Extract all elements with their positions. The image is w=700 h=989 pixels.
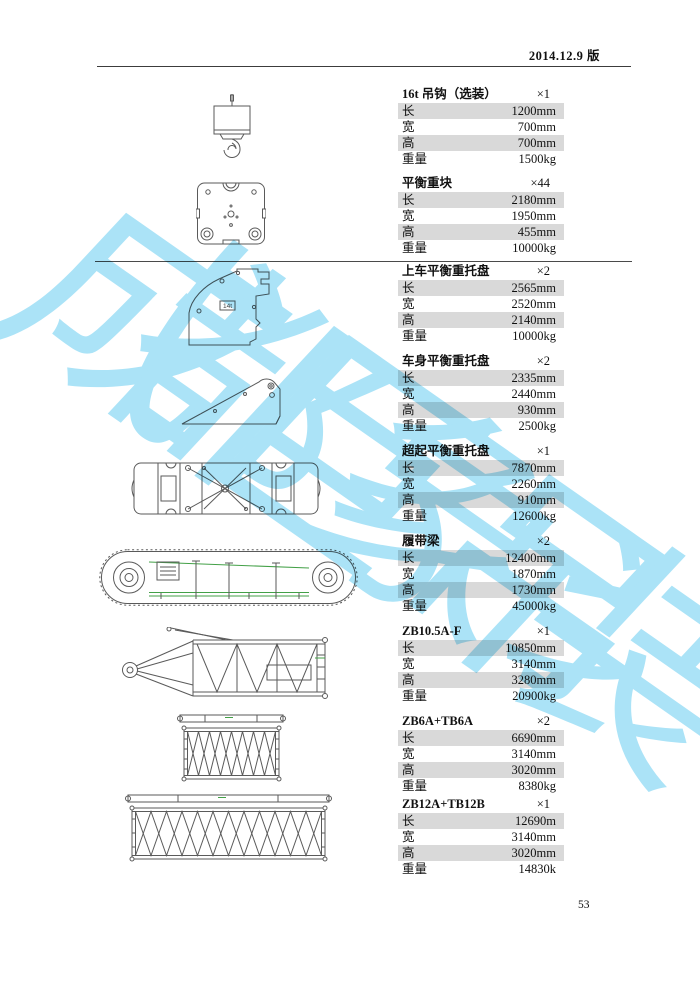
spec-row-value: 10000kg [512,240,556,256]
spec-row: 宽2260mm [398,476,564,492]
spec-row-value: 930mm [518,402,556,418]
spec-row: 长6690mm [398,730,564,746]
spec-row: 重量14830k [398,861,564,877]
spec-row-value: 10000kg [512,328,556,344]
spec-row-label: 宽 [402,746,415,762]
spec-row: 宽700mm [398,119,564,135]
spec-row-value: 3140mm [512,746,556,762]
spec-row-label: 高 [402,224,415,240]
document-page: 2014.12.9 版 成都巨象吊装 [0,0,700,989]
spec-row-label: 宽 [402,208,415,224]
spec-row-value: 20900kg [512,688,556,704]
spec-row-value: 2565mm [512,280,556,296]
spec-row-value: 3020mm [512,762,556,778]
spec-row-value: 3280mm [512,672,556,688]
boom-insert-zb6a-tb6a-drawing [175,713,288,784]
spec-row-value: 455mm [518,224,556,240]
spec-section-body-tray: 车身平衡重托盘 ×2 长2335mm 宽2440mm 高930mm 重量2500… [398,355,564,434]
spec-row-label: 重量 [402,778,427,794]
spec-row: 高700mm [398,135,564,151]
section-quantity: ×1 [537,624,550,639]
spec-section-crawler-beam: 履带梁 ×2 长12400mm 宽1870mm 高1730mm 重量45000k… [398,535,564,614]
spec-row: 重量20900kg [398,688,564,704]
spec-row-value: 700mm [518,135,556,151]
section-quantity: ×2 [537,264,550,279]
spec-row: 长2180mm [398,192,564,208]
spec-row-value: 2520mm [512,296,556,312]
spec-row: 重量10000kg [398,240,564,256]
spec-row: 长2565mm [398,280,564,296]
spec-row-label: 宽 [402,119,415,135]
spec-row: 高930mm [398,402,564,418]
spec-section-superlift-tray: 超起平衡重托盘 ×1 长7870mm 宽2260mm 高910mm 重量1260… [398,445,564,524]
spec-row: 长12400mm [398,550,564,566]
spec-row-label: 高 [402,492,415,508]
spec-row-value: 2140mm [512,312,556,328]
spec-row-label: 高 [402,762,415,778]
spec-row: 重量12600kg [398,508,564,524]
spec-row-value: 1500kg [519,151,557,167]
spec-row: 长10850mm [398,640,564,656]
spec-row-value: 14830k [519,861,557,877]
section-title: 上车平衡重托盘 [402,260,490,279]
spec-row: 宽2440mm [398,386,564,402]
spec-row: 高910mm [398,492,564,508]
spec-row: 长1200mm [398,103,564,119]
spec-row-label: 长 [402,103,415,119]
document-version: 2014.12.9 版 [400,45,600,64]
section-header: 16t 吊钩（选装） ×1 [398,88,564,103]
spec-row-value: 1200mm [512,103,556,119]
section-quantity: ×2 [537,714,550,729]
spec-row-label: 宽 [402,566,415,582]
spec-row-value: 1730mm [512,582,556,598]
section-title: 车身平衡重托盘 [402,350,490,369]
section-quantity: ×2 [537,354,550,369]
spec-row-label: 重量 [402,598,427,614]
body-counterweight-tray-drawing [179,371,284,428]
section-header: 车身平衡重托盘 ×2 [398,355,564,370]
section-title: 履带梁 [402,530,440,549]
spec-row-label: 长 [402,813,415,829]
spec-section-zb105af: ZB10.5A-F ×1 长10850mm 宽3140mm 高3280mm 重量… [398,625,564,704]
spec-row-label: 宽 [402,829,415,845]
spec-row: 高3280mm [398,672,564,688]
spec-row-label: 重量 [402,328,427,344]
section-header: 上车平衡重托盘 ×2 [398,265,564,280]
spec-row-label: 宽 [402,656,415,672]
spec-row-label: 宽 [402,296,415,312]
spec-section-zb6a-tb6a: ZB6A+TB6A ×2 长6690mm 宽3140mm 高3020mm 重量8… [398,715,564,794]
spec-row: 宽1950mm [398,208,564,224]
spec-row: 宽2520mm [398,296,564,312]
spec-row-label: 宽 [402,386,415,402]
spec-row: 重量1500kg [398,151,564,167]
spec-row: 高1730mm [398,582,564,598]
boom-insert-zb12a-tb12b-drawing [123,793,334,864]
section-title: 超起平衡重托盘 [402,440,490,459]
spec-row-value: 700mm [518,119,556,135]
spec-row-value: 3140mm [512,829,556,845]
spec-row-label: 宽 [402,476,415,492]
spec-row: 高3020mm [398,762,564,778]
page-number: 53 [578,899,590,911]
crawler-beam-drawing [99,547,358,608]
spec-row-value: 3020mm [512,845,556,861]
spec-section-zb12a-tb12b: ZB12A+TB12B ×1 长12690m 宽3140mm 高3020mm 重… [398,798,564,877]
superlift-counterweight-tray-drawing [130,455,322,522]
hook-drawing [210,94,254,168]
spec-row-value: 7870mm [512,460,556,476]
spec-row: 高2140mm [398,312,564,328]
spec-row-label: 高 [402,672,415,688]
spec-row: 长2335mm [398,370,564,386]
spec-row: 重量2500kg [398,418,564,434]
spec-row: 高3020mm [398,845,564,861]
spec-row-label: 重量 [402,508,427,524]
counterweight-block-drawing [196,181,266,247]
spec-row-value: 45000kg [512,598,556,614]
spec-row-value: 6690mm [512,730,556,746]
spec-row-value: 2180mm [512,192,556,208]
section-quantity: ×44 [530,176,550,191]
spec-row-label: 长 [402,730,415,746]
spec-section-hook: 16t 吊钩（选装） ×1 长1200mm 宽700mm 高700mm 重量15… [398,88,564,167]
spec-row-label: 长 [402,640,415,656]
spec-row: 高455mm [398,224,564,240]
spec-row-label: 长 [402,550,415,566]
spec-row-label: 高 [402,312,415,328]
spec-row: 宽3140mm [398,746,564,762]
section-quantity: ×1 [537,797,550,812]
section-title: ZB12A+TB12B [402,797,485,812]
section-title: 平衡重块 [402,172,452,191]
section-divider-rule [95,261,632,262]
section-header: 履带梁 ×2 [398,535,564,550]
drawing-capacity-label: 14t [223,303,232,310]
spec-row-label: 重量 [402,861,427,877]
spec-row-value: 2335mm [512,370,556,386]
section-header: 超起平衡重托盘 ×1 [398,445,564,460]
section-quantity: ×2 [537,534,550,549]
spec-row: 长7870mm [398,460,564,476]
spec-row-value: 1870mm [512,566,556,582]
boom-butt-zb105af-drawing [119,627,332,700]
section-header: ZB6A+TB6A ×2 [398,715,564,730]
spec-row-value: 3140mm [512,656,556,672]
header-rule [97,66,631,67]
spec-row-value: 12690m [515,813,556,829]
section-quantity: ×1 [537,444,550,459]
spec-row-value: 2440mm [512,386,556,402]
spec-row: 宽3140mm [398,656,564,672]
spec-row-label: 高 [402,845,415,861]
spec-row-value: 1950mm [512,208,556,224]
spec-row: 重量8380kg [398,778,564,794]
spec-row: 重量45000kg [398,598,564,614]
spec-row-label: 重量 [402,418,427,434]
spec-row-label: 重量 [402,688,427,704]
section-title: 16t 吊钩（选装） [402,83,497,102]
spec-row-label: 长 [402,370,415,386]
spec-row-label: 重量 [402,240,427,256]
spec-row-label: 高 [402,582,415,598]
section-header: ZB12A+TB12B ×1 [398,798,564,813]
spec-row-value: 10850mm [505,640,556,656]
spec-row: 宽1870mm [398,566,564,582]
section-quantity: ×1 [537,87,550,102]
spec-row-label: 长 [402,192,415,208]
spec-row-label: 长 [402,280,415,296]
spec-row-value: 910mm [518,492,556,508]
section-header: ZB10.5A-F ×1 [398,625,564,640]
spec-section-counterweight-block: 平衡重块 ×44 长2180mm 宽1950mm 高455mm 重量10000k… [398,177,564,256]
spec-section-upper-tray: 上车平衡重托盘 ×2 长2565mm 宽2520mm 高2140mm 重量100… [398,265,564,344]
spec-row-value: 2500kg [519,418,557,434]
spec-row-value: 2260mm [512,476,556,492]
spec-row-value: 12600kg [512,508,556,524]
spec-row-value: 8380kg [519,778,557,794]
upper-counterweight-tray-drawing: 14t [182,267,274,347]
watermark-text: 成都巨象吊装 [0,167,700,753]
section-title: ZB6A+TB6A [402,714,473,729]
spec-row-label: 长 [402,460,415,476]
spec-row-label: 重量 [402,151,427,167]
spec-row-label: 高 [402,402,415,418]
spec-row-label: 高 [402,135,415,151]
spec-row: 宽3140mm [398,829,564,845]
section-header: 平衡重块 ×44 [398,177,564,192]
spec-row-value: 12400mm [505,550,556,566]
spec-row: 长12690m [398,813,564,829]
section-title: ZB10.5A-F [402,624,461,639]
spec-row: 重量10000kg [398,328,564,344]
